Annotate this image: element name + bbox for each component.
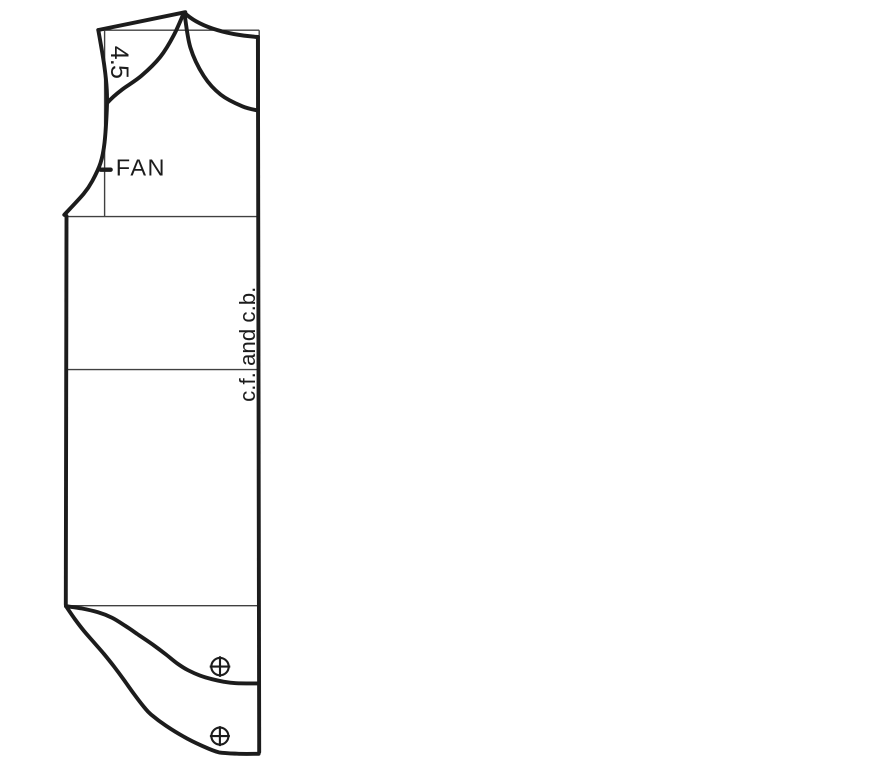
- svg-text:FAN: FAN: [116, 155, 166, 181]
- svg-text:4.5: 4.5: [105, 46, 133, 78]
- svg-text:c.f. and c.b.: c.f. and c.b.: [235, 287, 260, 402]
